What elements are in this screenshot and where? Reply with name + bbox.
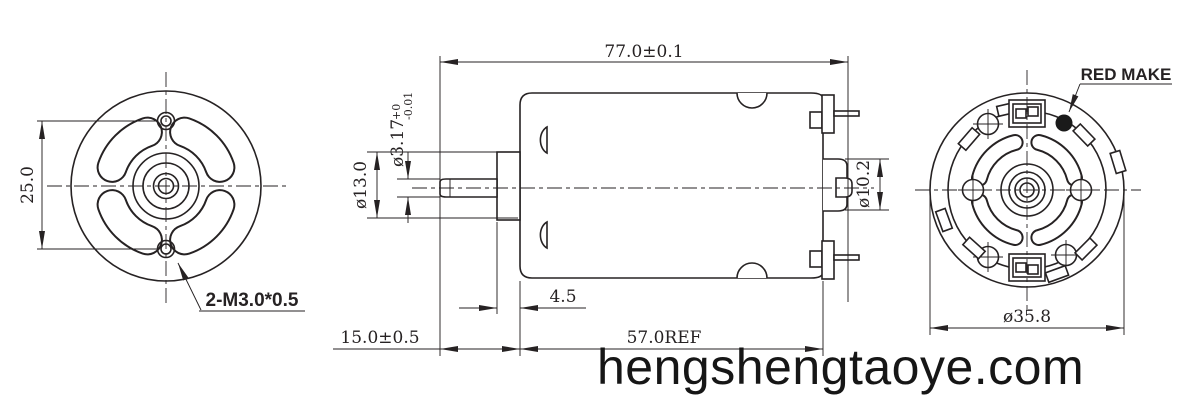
rear-body-dia-dim-text: ø35.8 [1003, 307, 1051, 327]
front-view: 25.0 2-M3.0*0.5 [18, 72, 305, 311]
body-top-notch [737, 93, 767, 108]
drawing-canvas: 25.0 2-M3.0*0.5 [0, 0, 1200, 401]
terminal-pin-top [834, 111, 859, 116]
front-section-dim-text: 15.0±0.5 [340, 328, 419, 348]
terminal-top [810, 95, 859, 133]
watermark-text: hengshengtaoye.com [597, 339, 1084, 395]
bushing-length-dim-text: 4.5 [549, 287, 576, 307]
front-bushing [497, 152, 520, 220]
case-crimp-top [540, 127, 547, 153]
motor-engineering-drawing: 25.0 2-M3.0*0.5 [0, 0, 1200, 401]
shaft-tol-lower-text: -0.01 [402, 92, 415, 120]
red-mark-label-text: RED MAKE [1081, 65, 1172, 84]
overall-length-dim-text: 77.0±0.1 [604, 42, 683, 62]
rear-view: RED MAKE ø35.8 [915, 65, 1172, 335]
front-thread-callout-text: 2-M3.0*0.5 [206, 290, 299, 311]
front-hole-spacing-dim-text: 25.0 [18, 166, 38, 204]
endbell-boss-dia-dim-text: ø10.2 [854, 160, 874, 208]
bushing-dia-dim-text: ø13.0 [351, 161, 371, 209]
motor-body-outline [520, 93, 823, 278]
side-dimensions: 77.0±0.1 ø3.17 +0 -0.01 ø13.0 4.5 [333, 42, 889, 356]
case-crimp-bottom [540, 222, 547, 248]
red-mark-callout: RED MAKE [1069, 65, 1172, 112]
side-view: 77.0±0.1 ø3.17 +0 -0.01 ø13.0 4.5 [333, 42, 889, 356]
endbell-nub [836, 178, 852, 197]
body-bottom-notch [737, 263, 767, 278]
terminal-bottom [810, 241, 859, 279]
terminal-pin-bottom [834, 255, 859, 260]
shaft-dia-dim-text: ø3.17 +0 -0.01 [388, 92, 415, 167]
red-mark-dot [1056, 115, 1073, 132]
svg-text:ø3.17: ø3.17 [388, 119, 408, 167]
